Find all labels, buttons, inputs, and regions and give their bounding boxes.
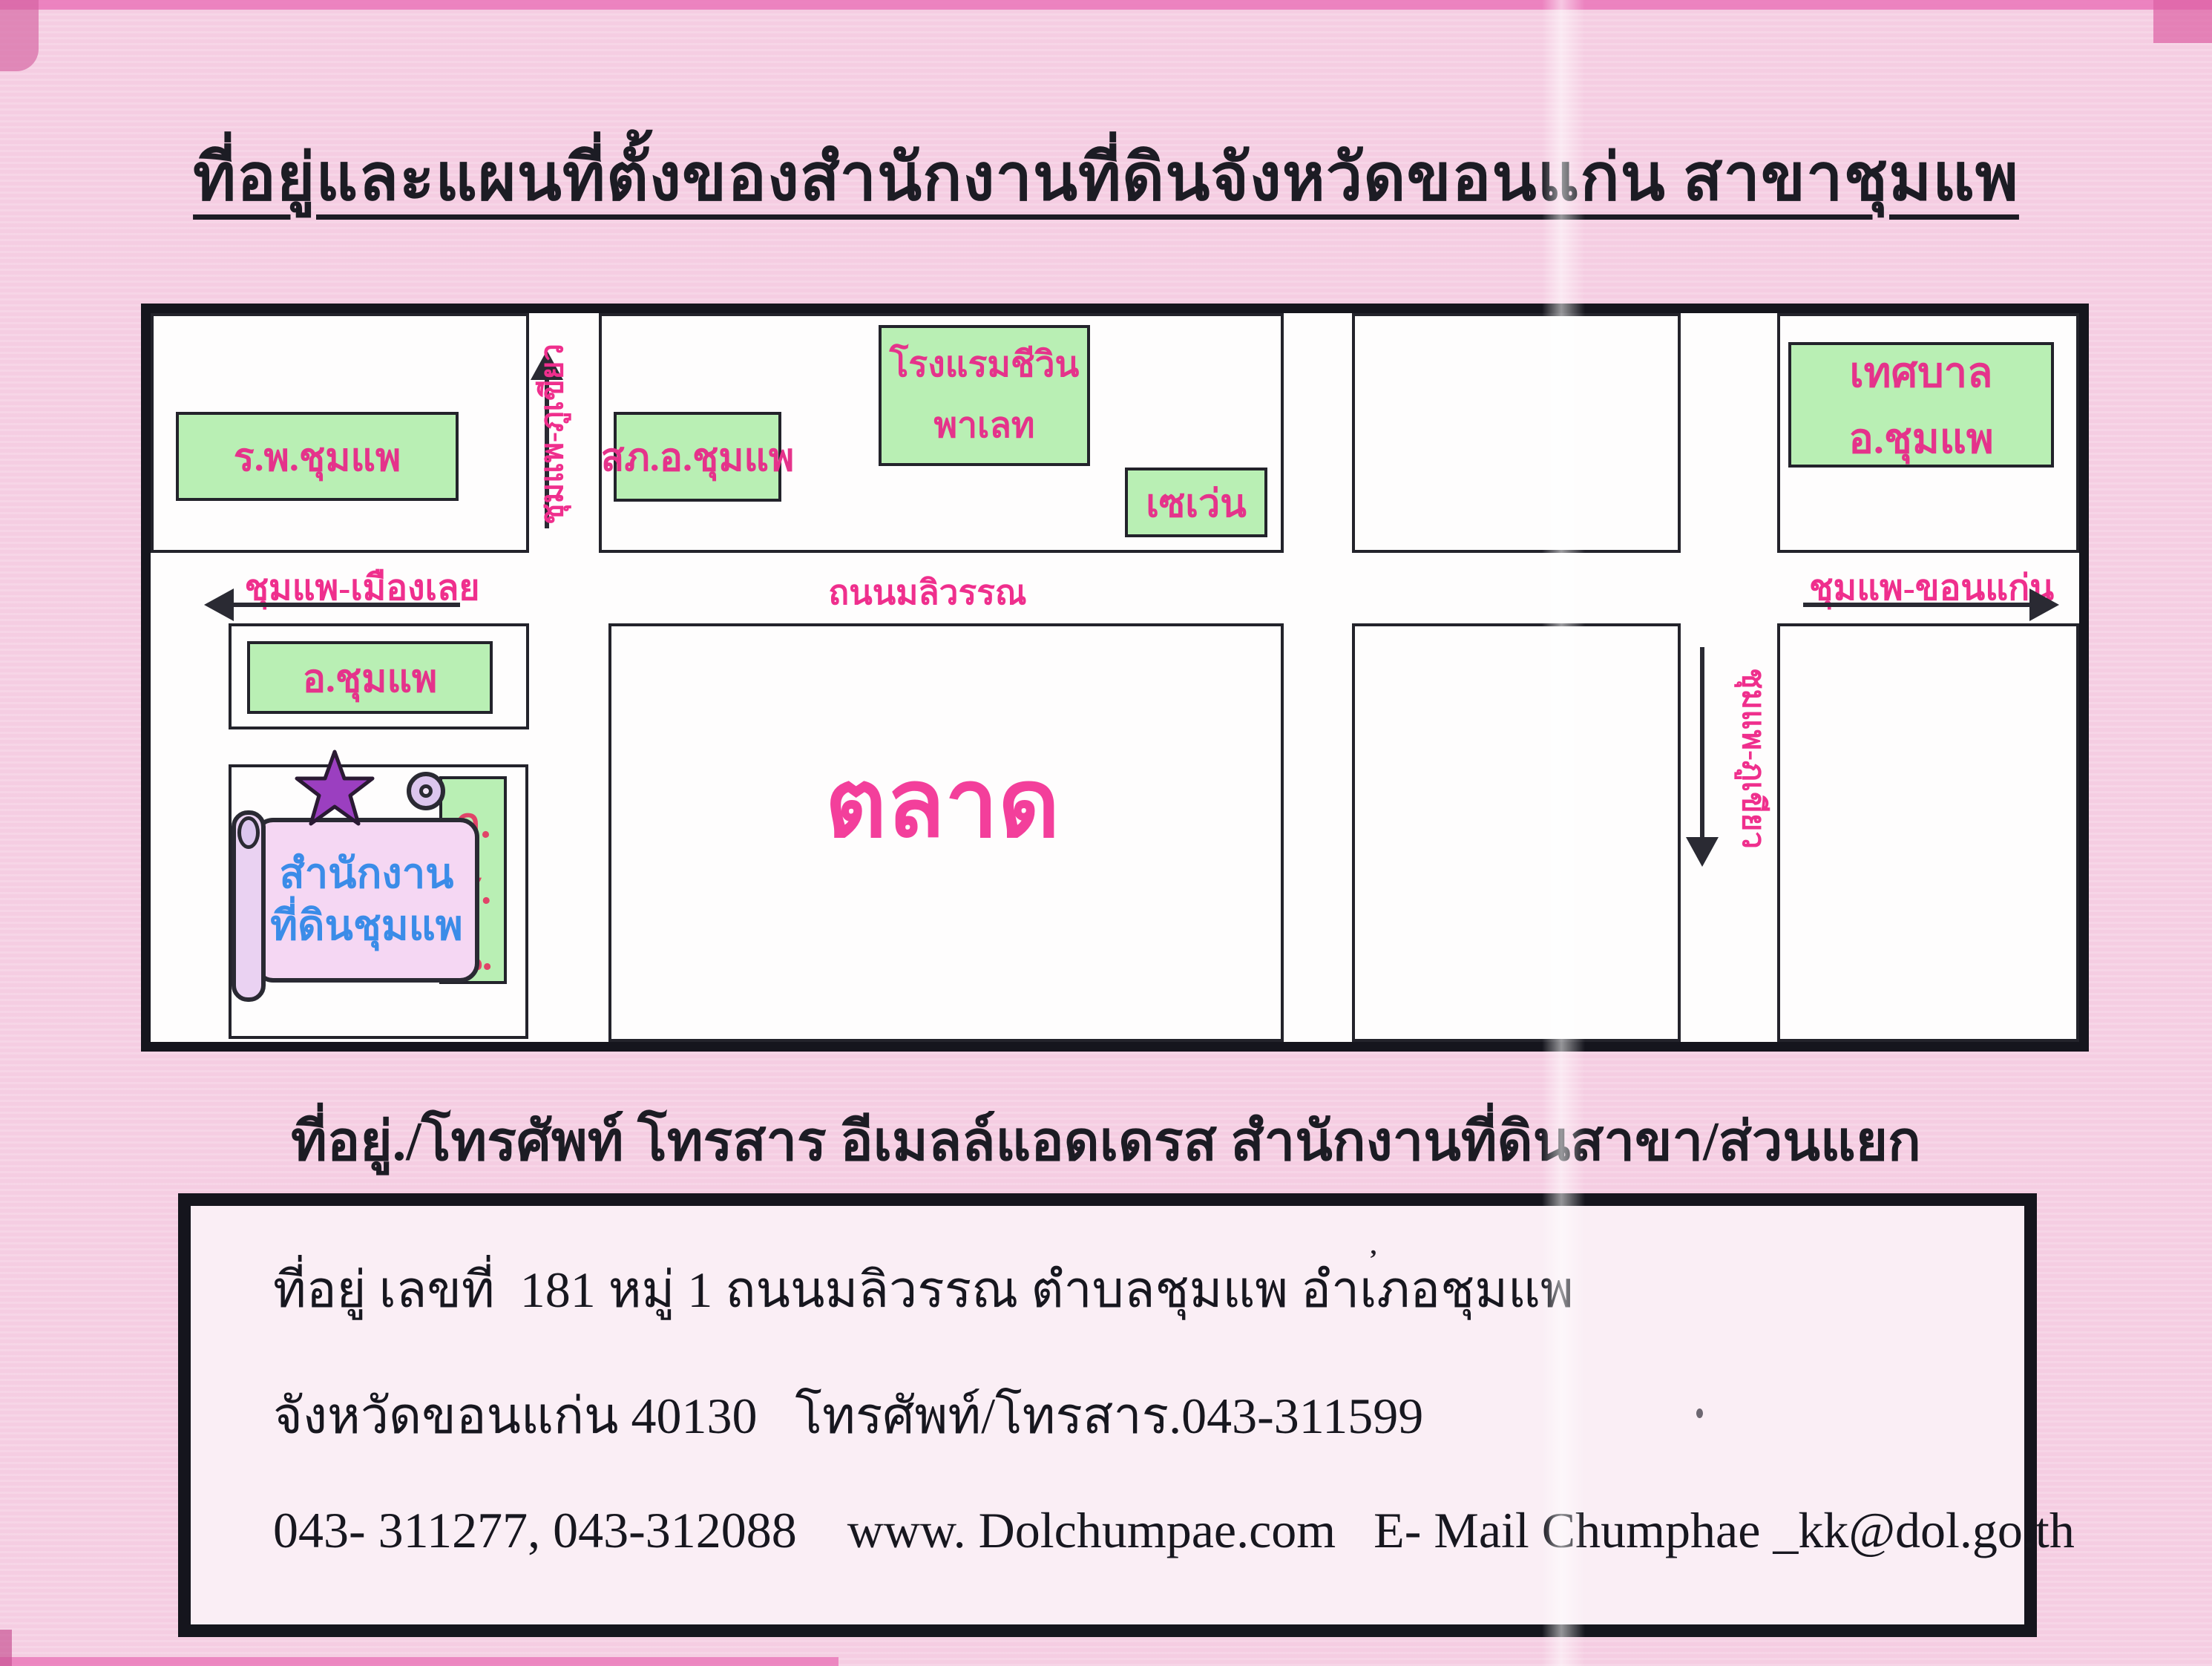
- hotel-label-line2: พาเลท: [933, 406, 1034, 445]
- paper-fold-crease: [1542, 0, 1585, 1666]
- dot-speck: [1696, 1408, 1703, 1418]
- hotel-label: โรงแรมชีวิน พาเลท: [890, 335, 1080, 456]
- scan-blotch-top-right: [2153, 0, 2212, 43]
- block-south-east-empty: [1352, 623, 1681, 1042]
- road-label-maliwan: ถนนมลิวรรณ: [828, 565, 1026, 620]
- municipality-box: เทศบาล อ.ชุมแพ: [1788, 342, 2054, 468]
- district-office-label: อ.ชุมแพ: [303, 647, 438, 709]
- block-north-east-empty: [1352, 313, 1681, 553]
- page-title: ที่อยู่และแผนที่ตั้งของสำนักงานที่ดินจัง…: [0, 125, 2212, 229]
- east-arrow-shaft: [1803, 603, 2031, 607]
- block-far-east-empty: [1777, 623, 2079, 1042]
- hospital-box: ร.พ.ชุมแพ: [176, 412, 459, 501]
- page-subtitle: ที่อยู่./โทรศัพท์ โทรสาร อีเมลล์แอดเดรส …: [0, 1097, 2212, 1184]
- police-station-box: สภ.อ.ชุมแพ: [614, 412, 781, 502]
- land-office-label-line2: ที่ดินชุมแพ: [270, 905, 463, 947]
- address-line-3: 043- 311277, 043-312088 www. Dolchumpae.…: [273, 1501, 2075, 1560]
- road-label-east: ชุมแพ-ขอนแก่น: [1809, 560, 2054, 616]
- market-label: ตลาด: [825, 728, 1060, 879]
- police-station-label: สภ.อ.ชุมแพ: [601, 426, 795, 488]
- star-icon: [294, 749, 375, 829]
- scan-edge-bottom: [0, 1657, 838, 1666]
- scroll-roll-hole-icon: [237, 816, 260, 849]
- ink-mark: ’: [1369, 1245, 1377, 1273]
- west-arrow-shaft: [232, 603, 460, 607]
- scan-blotch-top-left: [0, 0, 39, 71]
- location-map: ร.พ.ชุมแพ สภ.อ.ชุมแพ โรงแรมชีวิน พาเลท เ…: [141, 304, 2089, 1052]
- land-office-scroll: สำนักงาน ที่ดินชุมแพ: [254, 818, 479, 983]
- seven-eleven-box: เซเว่น: [1125, 468, 1267, 537]
- road-label-north-vertical: ชุมแพ-ภูเขียว: [528, 344, 577, 525]
- road-label-south-vertical: ชุมแพ-ภูเขียว: [1729, 668, 1778, 849]
- land-office-label-line1: สำนักงาน: [280, 853, 454, 895]
- seven-eleven-label: เซเว่น: [1146, 472, 1247, 534]
- west-arrow-icon: [204, 588, 234, 621]
- address-box: ที่อยู่ เลขที่ 181 หมู่ 1 ถนนมลิวรรณ ตำบ…: [178, 1193, 2037, 1637]
- hotel-box: โรงแรมชีวิน พาเลท: [879, 325, 1090, 466]
- scroll-curl-inner-icon: [419, 784, 433, 798]
- district-office-box: อ.ชุมแพ: [247, 641, 493, 714]
- east-arrow-icon: [2029, 588, 2059, 621]
- south-arrow-icon: [1686, 837, 1719, 867]
- hospital-label: ร.พ.ชุมแพ: [234, 426, 401, 488]
- south-arrow-shaft: [1700, 647, 1704, 839]
- address-line-2: จังหวัดขอนแก่น 40130 โทรศัพท์/โทรสาร.043…: [273, 1375, 1423, 1455]
- municipality-label: เทศบาล อ.ชุมแพ: [1791, 339, 2051, 471]
- hotel-label-line1: โรงแรมชีวิน: [890, 345, 1080, 384]
- scan-blotch-bottom-left: [0, 1630, 12, 1666]
- road-label-west: ชุมแพ-เมืองเลย: [244, 560, 479, 616]
- address-line-1: ที่อยู่ เลขที่ 181 หมู่ 1 ถนนมลิวรรณ ตำบ…: [273, 1249, 1574, 1329]
- scan-edge-top: [0, 0, 2212, 10]
